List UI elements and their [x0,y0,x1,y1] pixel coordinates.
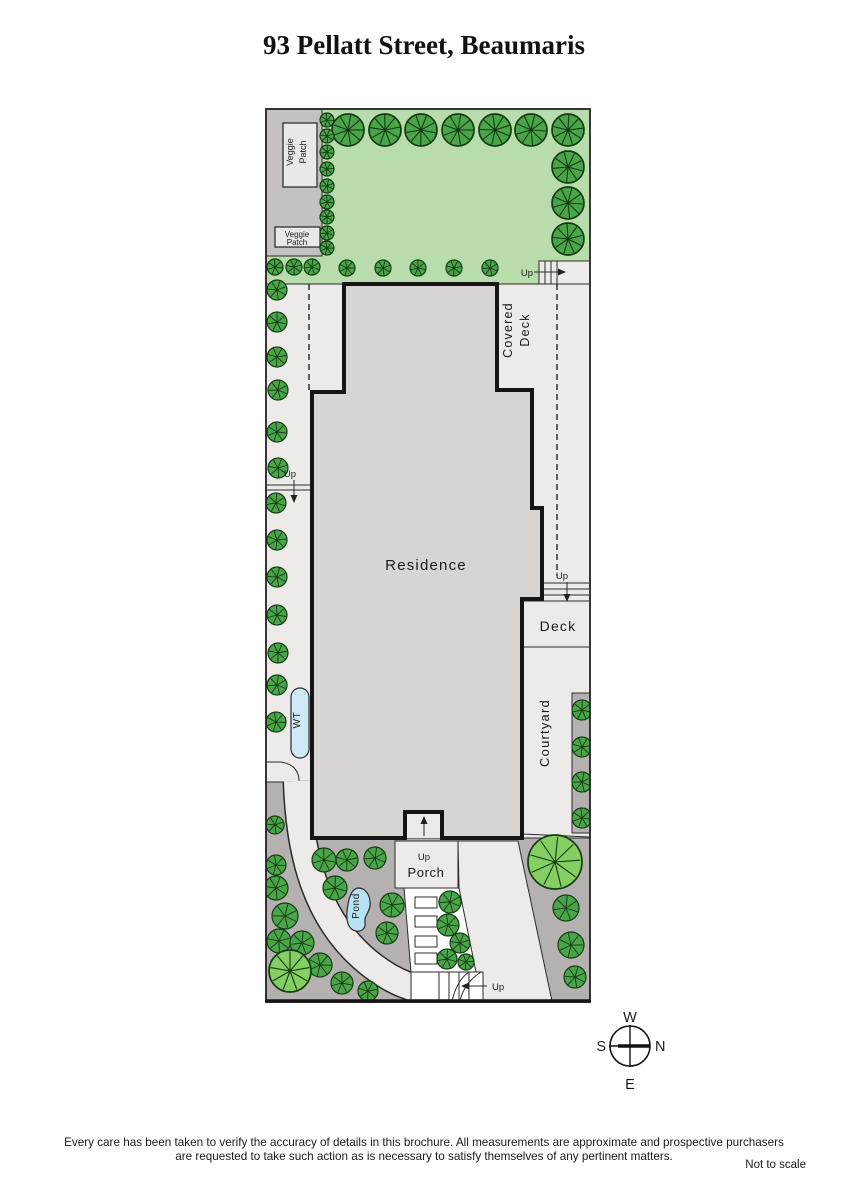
tree-icon [312,848,336,872]
disclaimer: Every care has been taken to verify the … [24,1136,824,1164]
disclaimer-line-2: are requested to take such action as is … [24,1150,824,1164]
tree-icon [339,260,355,276]
covered-deck-label-1: Covered [501,302,515,358]
stepping-stone [415,897,437,908]
tree-icon [358,981,378,1001]
stepping-stone [415,936,437,947]
tree-icon [320,241,334,255]
tree-icon [572,700,592,720]
tree-icon [320,210,334,224]
tree-icon [552,114,584,146]
compass-left: S [596,1039,606,1055]
tree-icon [267,422,287,442]
tree-icon [272,903,298,929]
tree-icon [437,914,459,936]
tree-icon [266,712,286,732]
tree-icon [331,972,353,994]
tree-icon [320,179,334,193]
stepping-stone [415,916,437,927]
veggie-patch-large-label-1: Veggie [285,138,295,166]
disclaimer-line-1: Every care has been taken to verify the … [24,1136,824,1150]
tree-icon [268,380,288,400]
up-label-porch: Up [418,852,430,863]
tree-icon [320,113,334,127]
large-tree-icon [528,835,582,889]
tree-icon [552,187,584,219]
compass-right: N [655,1039,665,1055]
tree-icon [564,966,586,988]
site-plan: Residence Covered Deck Deck Courtyard Po… [0,0,848,1200]
stepping-stone [415,953,437,964]
covered-deck-label-2: Deck [518,313,532,346]
compass-top: W [623,1010,637,1026]
tree-icon [266,855,286,875]
tree-icon [410,260,426,276]
tree-icon [446,260,462,276]
tree-icon [553,895,579,921]
courtyard-label: Courtyard [537,699,552,767]
tree-icon [267,280,287,300]
compass: W N S E [596,1010,665,1093]
tree-icon [267,675,287,695]
large-tree-icon [269,950,311,992]
tree-icon [572,772,592,792]
tree-icon [268,643,288,663]
tree-icon [266,816,284,834]
tree-icon [266,493,286,513]
tree-icon [264,876,288,900]
water-tank-label: WT [292,712,303,729]
up-label-rear: Up [521,268,533,279]
tree-icon [458,954,474,970]
porch-label: Porch [408,865,445,880]
tree-icon [267,530,287,550]
tree-icon [364,847,386,869]
residence-label: Residence [385,557,467,574]
tree-icon [572,808,592,828]
brochure-page: 93 Pellatt Street, Beaumaris [0,0,848,1200]
scale-note: Not to scale [745,1159,806,1171]
tree-icon [332,114,364,146]
up-label-left: Up [284,469,296,480]
tree-icon [558,932,584,958]
tree-icon [369,114,401,146]
tree-icon [320,195,334,209]
tree-icon [320,162,334,176]
tree-icon [286,259,302,275]
page-title: 93 Pellatt Street, Beaumaris [0,30,848,61]
tree-icon [323,876,347,900]
tree-icon [267,312,287,332]
tree-icon [405,114,437,146]
tree-icon [267,605,287,625]
tree-icon [320,129,334,143]
tree-icon [439,891,461,913]
tree-icon [552,223,584,255]
tree-icon [380,893,404,917]
tree-icon [375,260,391,276]
tree-icon [572,737,592,757]
tree-icon [320,145,334,159]
tree-icon [482,260,498,276]
veggie-patch-small-label-2: Patch [287,238,307,247]
tree-icon [515,114,547,146]
tree-icon [479,114,511,146]
tree-icon [450,933,470,953]
tree-icon [267,347,287,367]
tree-icon [376,922,398,944]
tree-icon [267,567,287,587]
compass-bottom: E [625,1077,635,1093]
tree-icon [320,226,334,240]
tree-icon [442,114,474,146]
up-label-mid-right: Up [556,571,568,582]
tree-icon [437,949,457,969]
tree-icon [552,151,584,183]
pond-label: Pond [351,893,362,919]
tree-icon [336,849,358,871]
veggie-patch-large-label-2: Patch [298,140,308,163]
up-label-front: Up [492,982,504,993]
deck-label: Deck [540,618,577,634]
tree-icon [304,259,320,275]
tree-icon [267,259,283,275]
